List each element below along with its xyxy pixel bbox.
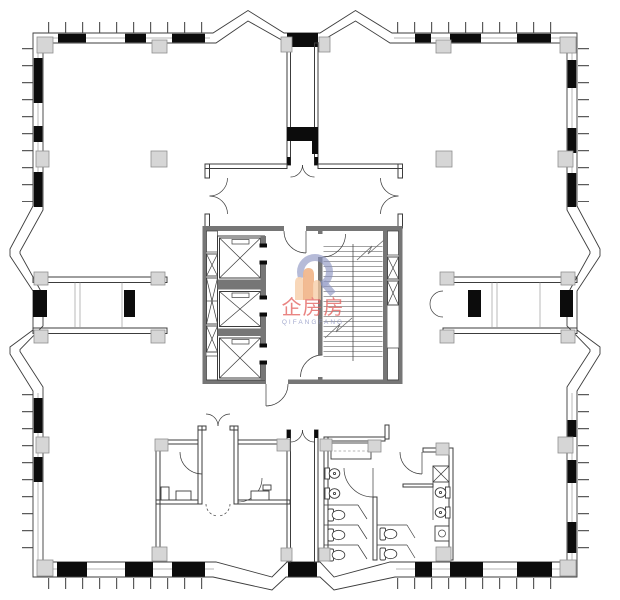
double-door <box>291 165 315 177</box>
stair-upper-door <box>323 234 346 257</box>
toilet <box>328 549 345 561</box>
left-double-door <box>210 178 228 214</box>
toilet <box>380 548 397 560</box>
bridge-double-door <box>430 291 443 317</box>
column-pads <box>34 37 576 576</box>
stair-lower-door <box>301 355 323 377</box>
floor-plan-canvas: 企房房 QIFANGFANG <box>0 0 620 600</box>
right-washroom-door <box>400 452 422 474</box>
floor-plan-drawing <box>0 0 620 600</box>
stairwell <box>301 231 388 380</box>
top-service-shaft <box>287 43 318 177</box>
free-column <box>436 151 452 167</box>
toilet <box>328 529 345 541</box>
left-link-bridge <box>33 277 167 334</box>
toilet <box>380 528 397 540</box>
vestibule-double-door <box>206 414 230 426</box>
toilet-stalls-right <box>377 525 415 560</box>
bottom-service-shaft <box>287 430 318 562</box>
mop-sink <box>435 526 449 541</box>
window-ticks <box>28 28 584 584</box>
entry-lobby-room <box>205 164 403 228</box>
right-double-door <box>381 178 399 214</box>
left-washroom-door <box>344 468 373 497</box>
lobby-bottom-door <box>266 384 288 406</box>
elevator-doors <box>260 236 268 380</box>
wall-basin <box>325 468 340 479</box>
left-duct-shafts <box>207 231 218 380</box>
vanity-counter <box>331 443 371 459</box>
wall-basin <box>435 507 450 518</box>
lobby-top-door <box>284 231 306 253</box>
toilet <box>328 509 345 521</box>
corridor-dashed-doors <box>206 504 230 516</box>
elevator-shaft-1 <box>220 238 261 278</box>
perimeter-wall <box>10 11 600 591</box>
elevator-bank <box>218 236 268 380</box>
double-door <box>291 430 315 442</box>
restroom-suite <box>324 425 453 561</box>
service-counters <box>161 485 271 500</box>
elevator-shaft-2 <box>220 292 261 327</box>
shear-wall-segments <box>34 33 576 577</box>
wall-basin <box>325 488 340 499</box>
left-service-suite <box>156 414 290 560</box>
right-link-bridge <box>430 277 577 334</box>
wall-basin <box>435 487 450 498</box>
left-room-door <box>180 452 202 474</box>
free-column <box>151 151 167 167</box>
right-duct-shafts <box>388 231 399 380</box>
elevator-shaft-3 <box>220 338 261 378</box>
building-core <box>203 226 403 406</box>
toilet-stalls-left <box>324 505 367 561</box>
